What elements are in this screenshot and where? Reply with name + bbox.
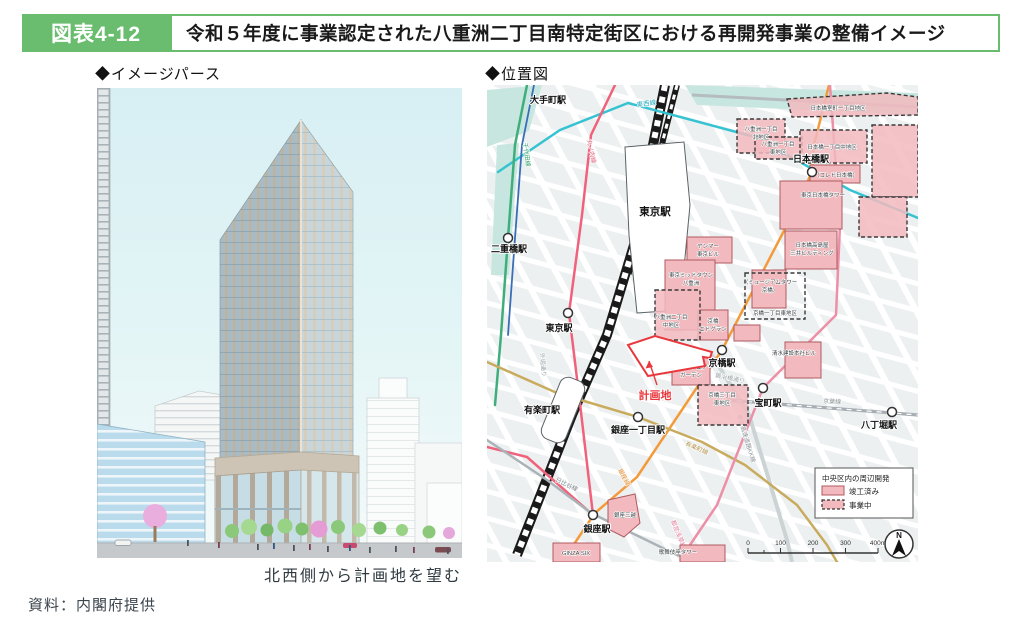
area-label: 歌舞伎座タワー [659, 548, 698, 556]
legend-swatch-ongoing [822, 500, 844, 509]
legend-completed-label: 竣工済み [849, 486, 879, 496]
figure-title: 令和５年度に事業認定された八重洲二丁目南特定街区における再開発事業の整備イメージ [186, 20, 946, 46]
area-label: 京橋一丁目東地区 [753, 309, 798, 317]
area-label: GINZA SIX [562, 551, 590, 557]
legend-title: 中央区内の周辺開発 [822, 473, 890, 483]
area-label: 三井ビルディング [790, 249, 834, 257]
area-label: （コレド日本橋） [814, 171, 858, 179]
rendering-canvas [97, 88, 462, 558]
left-panel-heading: ◆イメージパース [95, 63, 221, 84]
area-label: 京橋三丁目 [708, 391, 736, 399]
figure-title-box: 令和５年度に事業認定された八重洲二丁目南特定街区における再開発事業の整備イメージ [170, 14, 1000, 52]
scale-tick-300: 300 [840, 540, 851, 547]
legend-swatch-completed [822, 486, 844, 495]
area-label: 東地区 [714, 399, 731, 407]
area-label: 京橋 [707, 317, 719, 325]
location-map: 東西線 丸ノ内線 千代田線 銀座線 日比谷線 有楽町線 都営浅草線 京葉線 外堀… [487, 85, 918, 562]
map-canvas: 東西線 丸ノ内線 千代田線 銀座線 日比谷線 有楽町線 都営浅草線 京葉線 外堀… [487, 85, 918, 562]
left-glass-building [97, 424, 205, 550]
figure-number-badge: 図表4-12 [22, 14, 170, 52]
area-label: 東京ミッドタウン [669, 271, 714, 279]
area-label: 八重洲一丁目 [761, 140, 794, 148]
scale-tick-200: 200 [808, 540, 819, 547]
scale-tick-400: 400m [870, 540, 886, 547]
north-arrow: N [885, 530, 913, 558]
map-legend: 中央区内の周辺開発 竣工済み 事業中 [815, 468, 913, 518]
otemachi-station-label: 大手町駅 [530, 94, 567, 105]
ginza-itchome-station-label: 銀座一丁目駅 [611, 424, 666, 435]
site-label: 計画地 [639, 388, 672, 402]
tokyo-station-label: 東京駅 [639, 205, 671, 218]
area-label: 東地区 [770, 148, 787, 156]
ginza-station-label: 銀座駅 [583, 523, 611, 534]
area-label: ヤンマー [697, 243, 719, 250]
area-label: ガーデン [680, 371, 703, 379]
hatchobori-station-label: 八丁堀駅 [860, 419, 898, 430]
area-label: 八重洲 [683, 279, 700, 287]
nihombashi-station-label: 日本橋駅 [793, 153, 830, 164]
nijubashi-station-label: 二重橋駅 [491, 243, 528, 254]
takaracho-station-label: 宝町駅 [754, 397, 782, 408]
area-label: 東京日本橋タワー [801, 191, 845, 199]
area-label: 中地区 [663, 321, 680, 329]
area-label: 東京ビル [697, 250, 720, 258]
area-label: エドグラン [699, 325, 727, 333]
yurakucho-station-label: 有楽町駅 [524, 404, 561, 415]
area-label: 京橋） [762, 286, 779, 294]
perspective-rendering [97, 88, 462, 558]
area-label: （ミュージアムタワー [743, 278, 798, 286]
street [97, 543, 462, 558]
tokyo-metro-station-label: 東京駅 [545, 322, 573, 333]
area-label: 日本橋一丁目中地区 [807, 143, 857, 151]
scale-tick-0: 0 [746, 540, 750, 547]
area-label: 日本橋室町一丁目地区 [810, 104, 866, 112]
area-label: 日本橋高島屋 [795, 241, 829, 249]
rendering-caption: 北西側から計画地を望む [97, 562, 468, 586]
legend-ongoing-label: 事業中 [849, 500, 872, 510]
area-label: 銀座三越 [614, 511, 637, 519]
figure-page: 図表4-12 令和５年度に事業認定された八重洲二丁目南特定街区における再開発事業… [0, 0, 1024, 629]
scale-tick-100: 100 [775, 540, 786, 547]
area-label: 八重洲一丁目 [744, 125, 777, 133]
source-note: 資料：内閣府提供 [28, 594, 156, 615]
area-label: 清水建設本社ビル [772, 349, 817, 357]
kyobashi-station-label: 京橋駅 [708, 357, 736, 368]
area-label: 八重洲二丁目 [654, 313, 687, 321]
north-label: N [896, 531, 902, 540]
area-label: 北地区 [753, 133, 770, 141]
right-panel-heading: ◆位置図 [485, 63, 549, 84]
